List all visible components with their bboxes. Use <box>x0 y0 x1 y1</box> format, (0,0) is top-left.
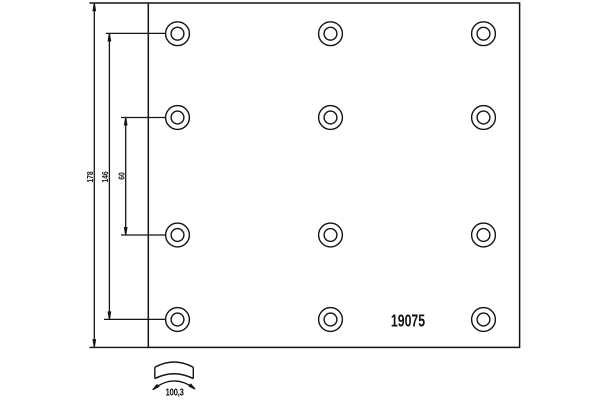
svg-text:178: 178 <box>85 171 95 183</box>
svg-text:146: 146 <box>100 171 110 183</box>
svg-text:19075: 19075 <box>391 311 425 331</box>
svg-text:100,3: 100,3 <box>166 386 184 397</box>
svg-text:60: 60 <box>116 172 126 180</box>
